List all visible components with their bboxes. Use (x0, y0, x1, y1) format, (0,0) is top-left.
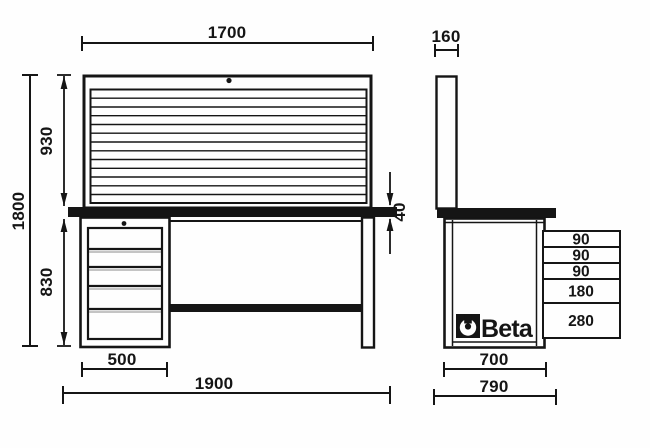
worktop-front (68, 207, 397, 217)
slatted-tool-panel (91, 90, 367, 204)
dim-body-depth-label: 700 (480, 350, 509, 369)
cabinet-lock-dot (122, 221, 127, 226)
dim-overall-depth-label: 790 (480, 377, 509, 396)
back-panel-side (437, 77, 457, 209)
drawer-row-label: 90 (572, 264, 589, 281)
crossbar-shelf (169, 304, 362, 312)
front-view: 1700 (9, 23, 409, 404)
drawer-row-label: 90 (572, 232, 589, 249)
technical-drawing-sheet: 1700 (0, 0, 650, 448)
drawer-row-label: 280 (568, 313, 594, 330)
panel-mounting-dot (226, 78, 231, 83)
dim-total-height-label: 1800 (9, 192, 28, 231)
drawer-stack-front (88, 228, 162, 339)
dim-worktop-thickness-label: 40 (390, 202, 409, 221)
dim-cabinet-width-label: 500 (108, 350, 137, 369)
right-leg (362, 218, 374, 348)
dim-panel-height (57, 75, 71, 206)
dim-panel-height-label: 930 (37, 127, 56, 156)
dim-top-width-label: 1700 (208, 23, 247, 42)
drawer-row-label: 180 (568, 284, 594, 301)
dim-panel-depth-label: 160 (432, 27, 461, 46)
side-view: 160 Beta 90 90 (432, 27, 620, 405)
drawer-row-label: 90 (572, 248, 589, 265)
dim-under-height (57, 219, 71, 346)
drawer-height-table: 90 90 90 180 280 (543, 231, 620, 338)
dim-overall-width-label: 1900 (195, 374, 234, 393)
workbench-drawing: 1700 (0, 0, 650, 448)
dim-under-height-label: 830 (37, 268, 56, 297)
beta-logo-text: Beta (481, 315, 534, 343)
worktop-side (437, 208, 556, 218)
